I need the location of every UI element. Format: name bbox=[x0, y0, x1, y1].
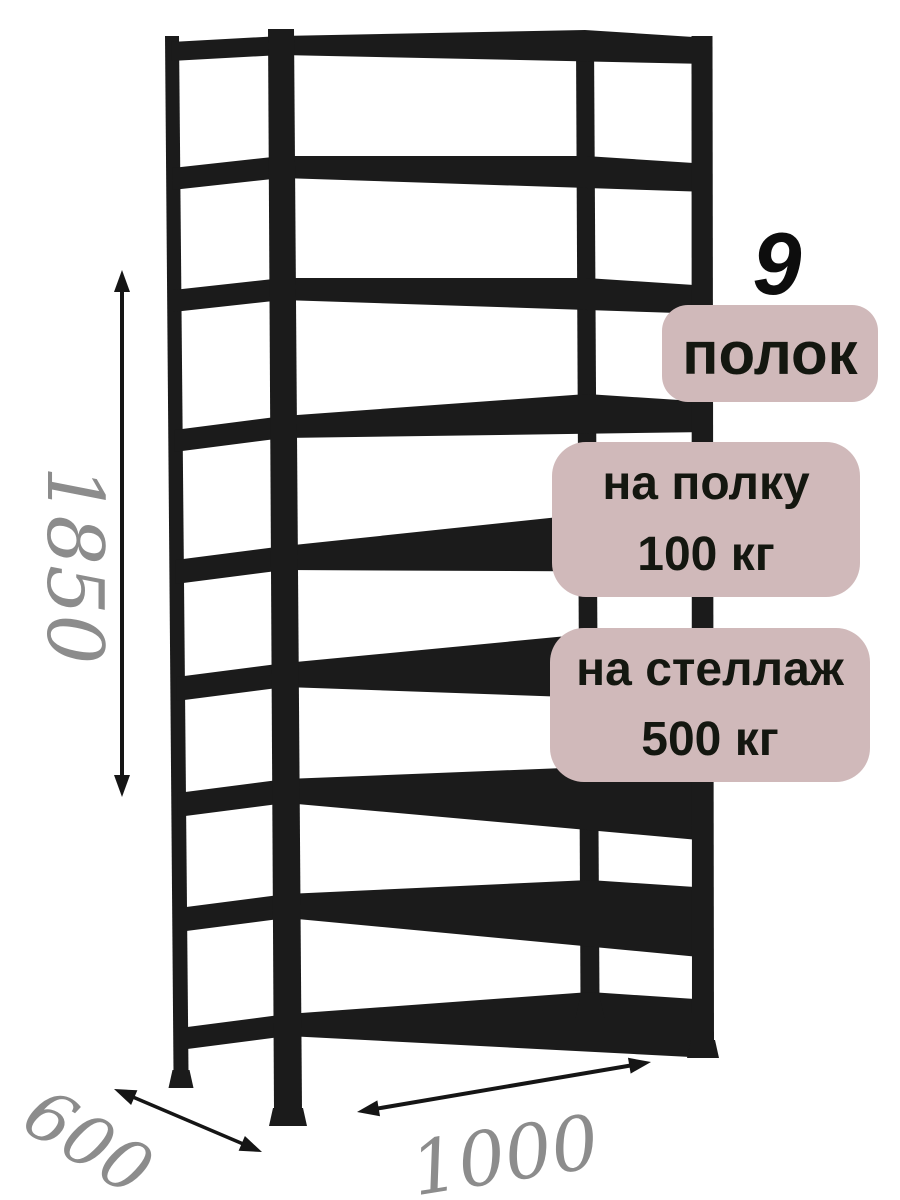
rack-shelf bbox=[180, 992, 710, 1058]
product-image: 1850 600 1000 9 полок на полку 100 кг на… bbox=[0, 0, 900, 1200]
total-rack-load-line1: на стеллаж bbox=[576, 635, 844, 705]
height-dimension-arrow-head bbox=[114, 775, 130, 797]
width-dimension-arrow-head bbox=[357, 1100, 380, 1116]
total-rack-load-line2: 500 кг bbox=[641, 705, 778, 775]
per-shelf-load-line2: 100 кг bbox=[637, 520, 774, 590]
depth-dimension-arrow-head bbox=[114, 1089, 137, 1105]
rack-shelf bbox=[171, 30, 709, 64]
width-dimension-arrow-head bbox=[628, 1058, 651, 1074]
rack-render bbox=[0, 0, 900, 1200]
shelf-count-number: 9 bbox=[753, 213, 802, 315]
rack-shelf bbox=[172, 156, 709, 192]
rack-foot bbox=[576, 1000, 605, 1018]
rack-shelf bbox=[173, 278, 709, 314]
height-dimension-label: 1850 bbox=[29, 466, 119, 665]
height-dimension-arrow-head bbox=[114, 270, 130, 292]
per-shelf-load-line1: на полку bbox=[602, 449, 809, 519]
rack-post-front-left bbox=[268, 29, 302, 1110]
width-dimension-arrow bbox=[372, 1065, 636, 1110]
shelf-count-badge-label: полок bbox=[682, 319, 857, 388]
rack-foot bbox=[269, 1108, 307, 1126]
total-rack-load-badge: на стеллаж 500 кг bbox=[550, 628, 870, 782]
per-shelf-load-badge: на полку 100 кг bbox=[552, 442, 860, 597]
rack-foot bbox=[687, 1040, 719, 1058]
depth-dimension-arrow-head bbox=[239, 1136, 262, 1152]
rack-foot bbox=[169, 1070, 194, 1088]
shelf-count-badge: полок bbox=[662, 305, 878, 402]
rack-shelf bbox=[179, 880, 710, 958]
